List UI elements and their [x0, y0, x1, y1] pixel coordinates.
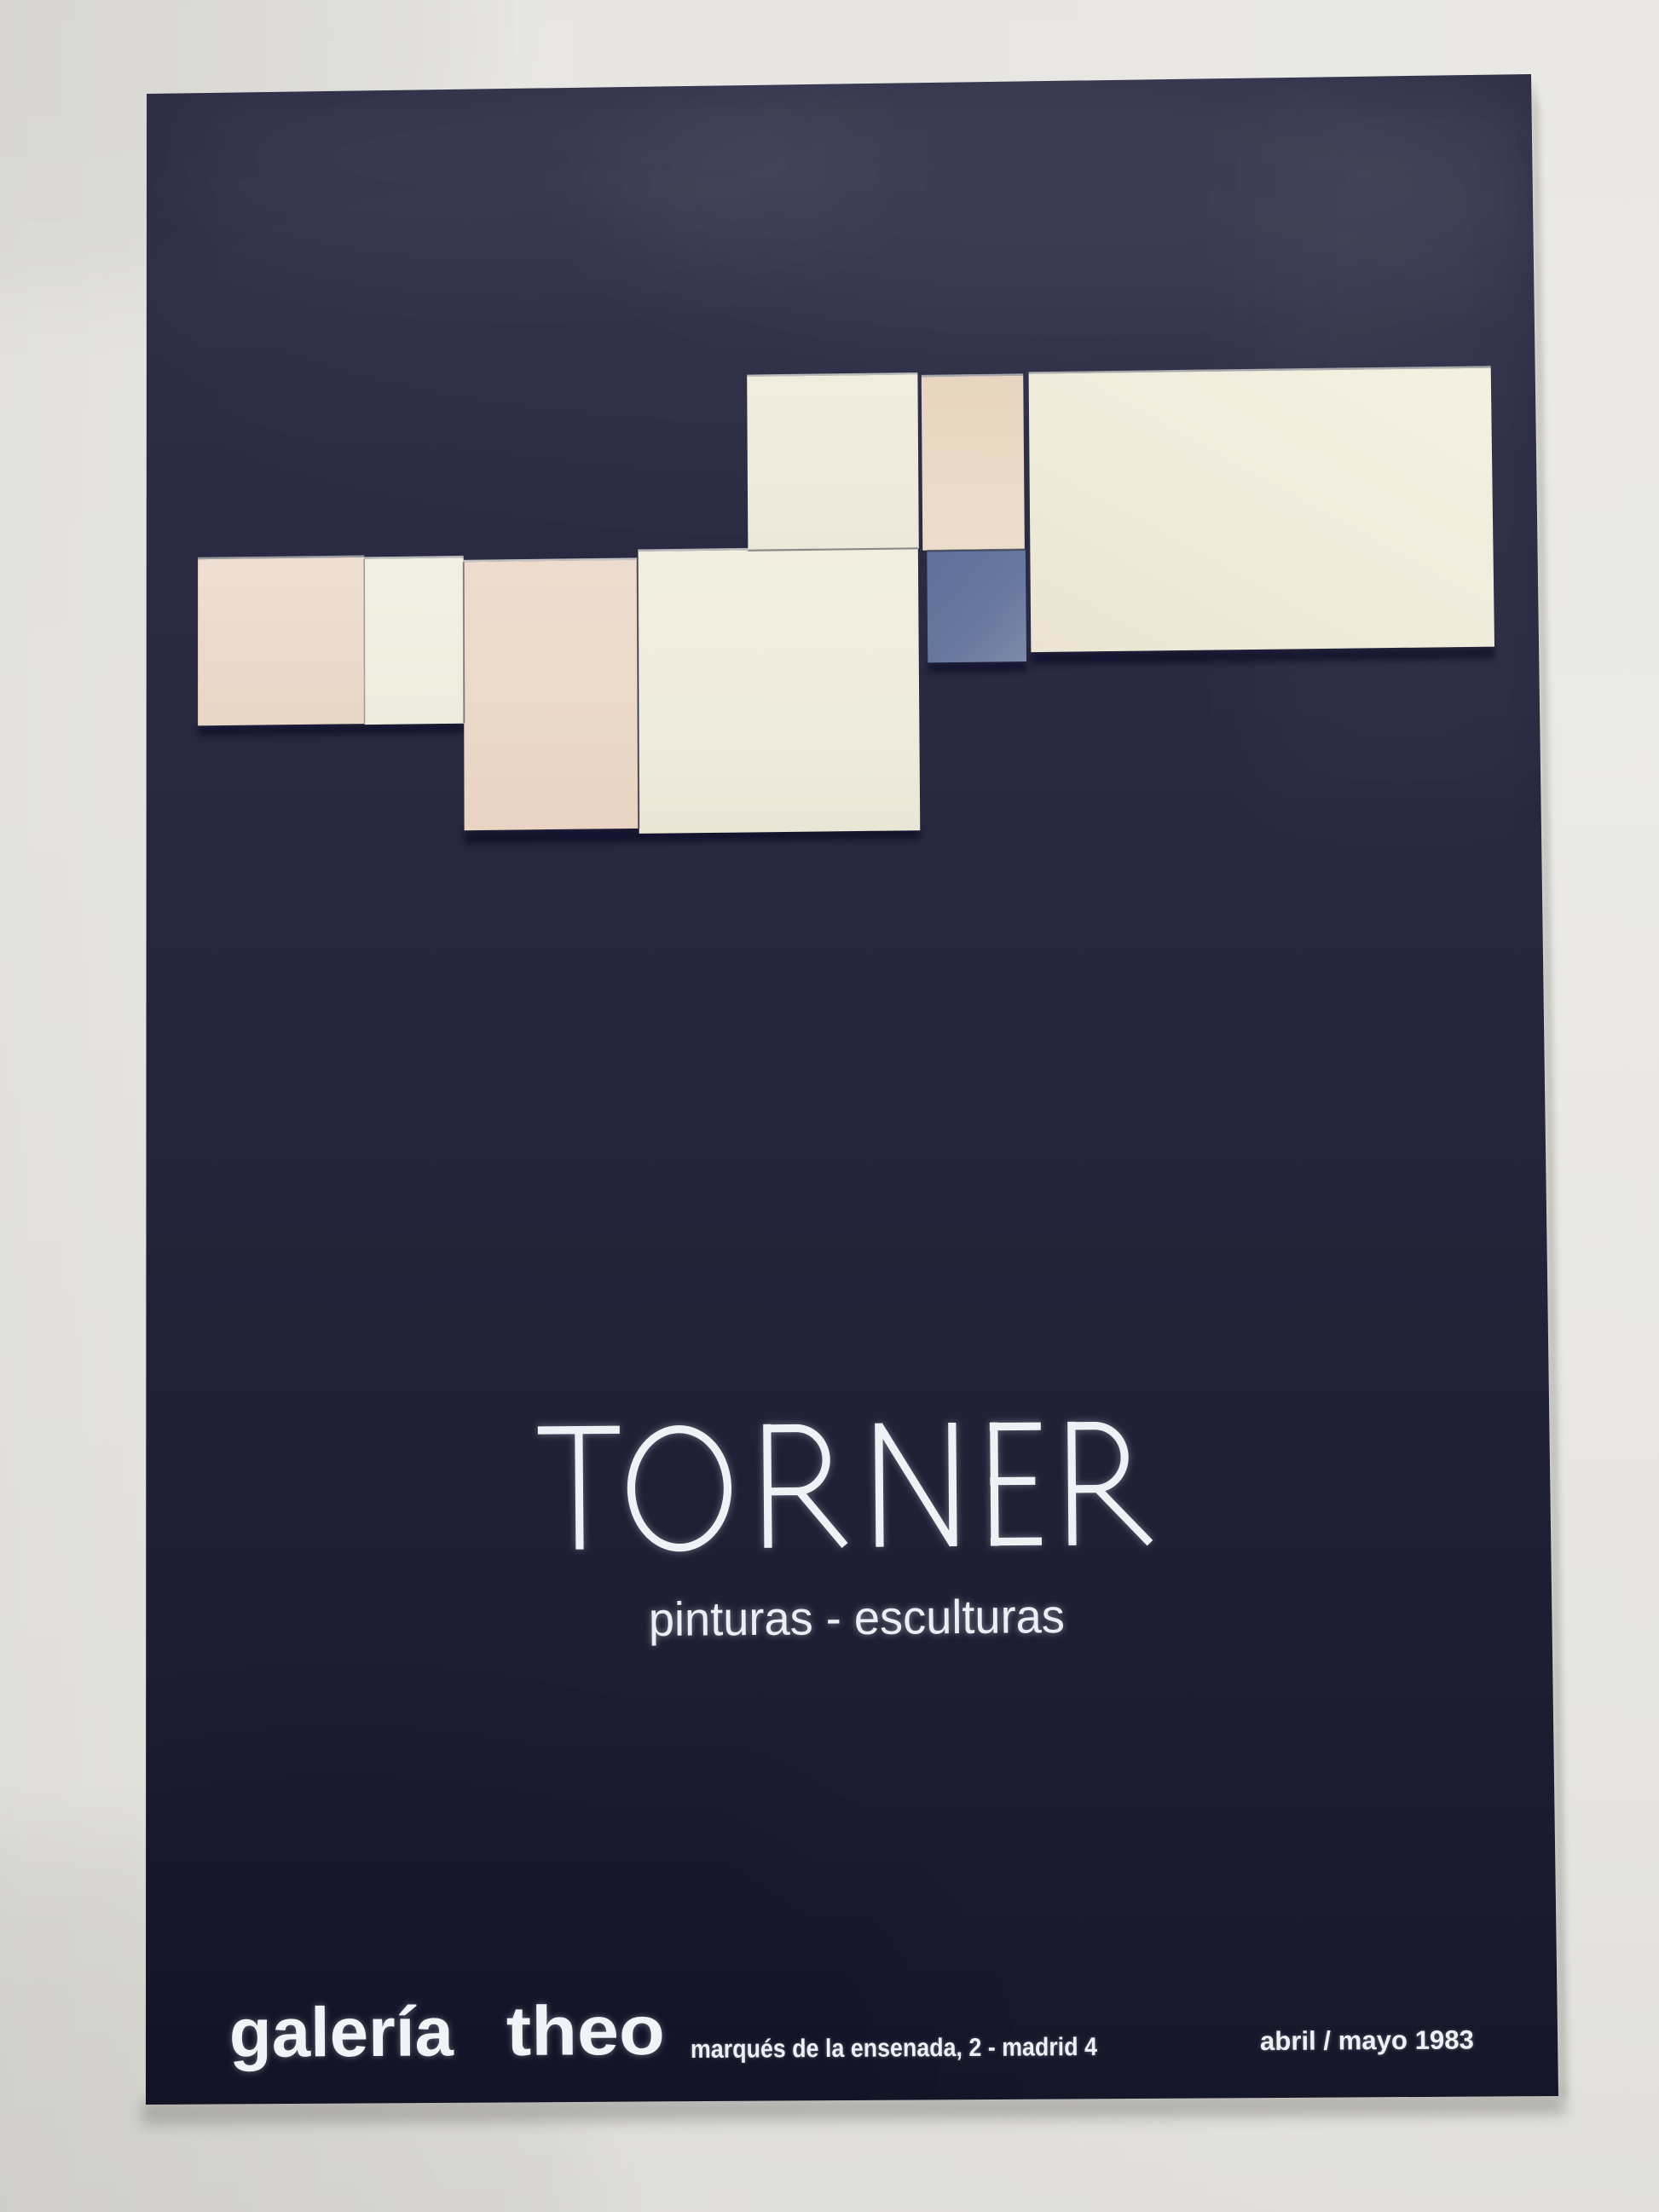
svg-text:galería: galería — [229, 1993, 455, 2072]
svg-text:theo: theo — [506, 1992, 666, 2071]
svg-text:abril / mayo 1983: abril / mayo 1983 — [1260, 2024, 1474, 2056]
svg-text:marqués de la ensenada, 2 -: marqués de la ensenada, 2 - madrid 4 — [691, 2033, 1097, 2064]
svg-text:pinturas - esculturas: pinturas - esculturas — [649, 1589, 1065, 1646]
